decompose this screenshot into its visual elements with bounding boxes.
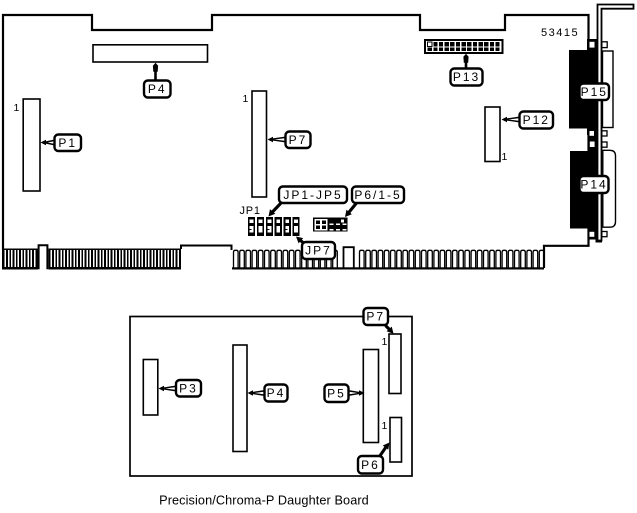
svg-text:P15: P15 xyxy=(581,85,608,99)
svg-text:P14: P14 xyxy=(580,178,607,192)
svg-text:Precision/Chroma-P Daughter Bo: Precision/Chroma-P Daughter Board xyxy=(159,494,369,508)
svg-text:P1: P1 xyxy=(58,136,77,150)
svg-text:P4: P4 xyxy=(148,82,167,96)
svg-text:P3: P3 xyxy=(179,381,198,395)
svg-text:JP1: JP1 xyxy=(240,205,261,217)
svg-text:1: 1 xyxy=(502,151,508,163)
svg-text:P4: P4 xyxy=(267,386,286,400)
svg-text:P7: P7 xyxy=(289,133,308,147)
svg-text:P5: P5 xyxy=(327,386,346,400)
svg-text:JP1-JP5: JP1-JP5 xyxy=(283,188,342,202)
svg-text:P6/1-5: P6/1-5 xyxy=(354,188,401,202)
svg-text:P6: P6 xyxy=(361,458,380,472)
svg-text:P12: P12 xyxy=(523,113,550,127)
svg-text:53415: 53415 xyxy=(541,27,579,39)
svg-text:P13: P13 xyxy=(453,70,480,84)
svg-text:1: 1 xyxy=(243,93,249,105)
svg-text:JP7: JP7 xyxy=(305,244,332,258)
svg-text:P7: P7 xyxy=(366,310,385,324)
svg-text:1: 1 xyxy=(382,420,388,432)
svg-text:1: 1 xyxy=(14,102,20,114)
svg-text:1: 1 xyxy=(382,336,388,348)
